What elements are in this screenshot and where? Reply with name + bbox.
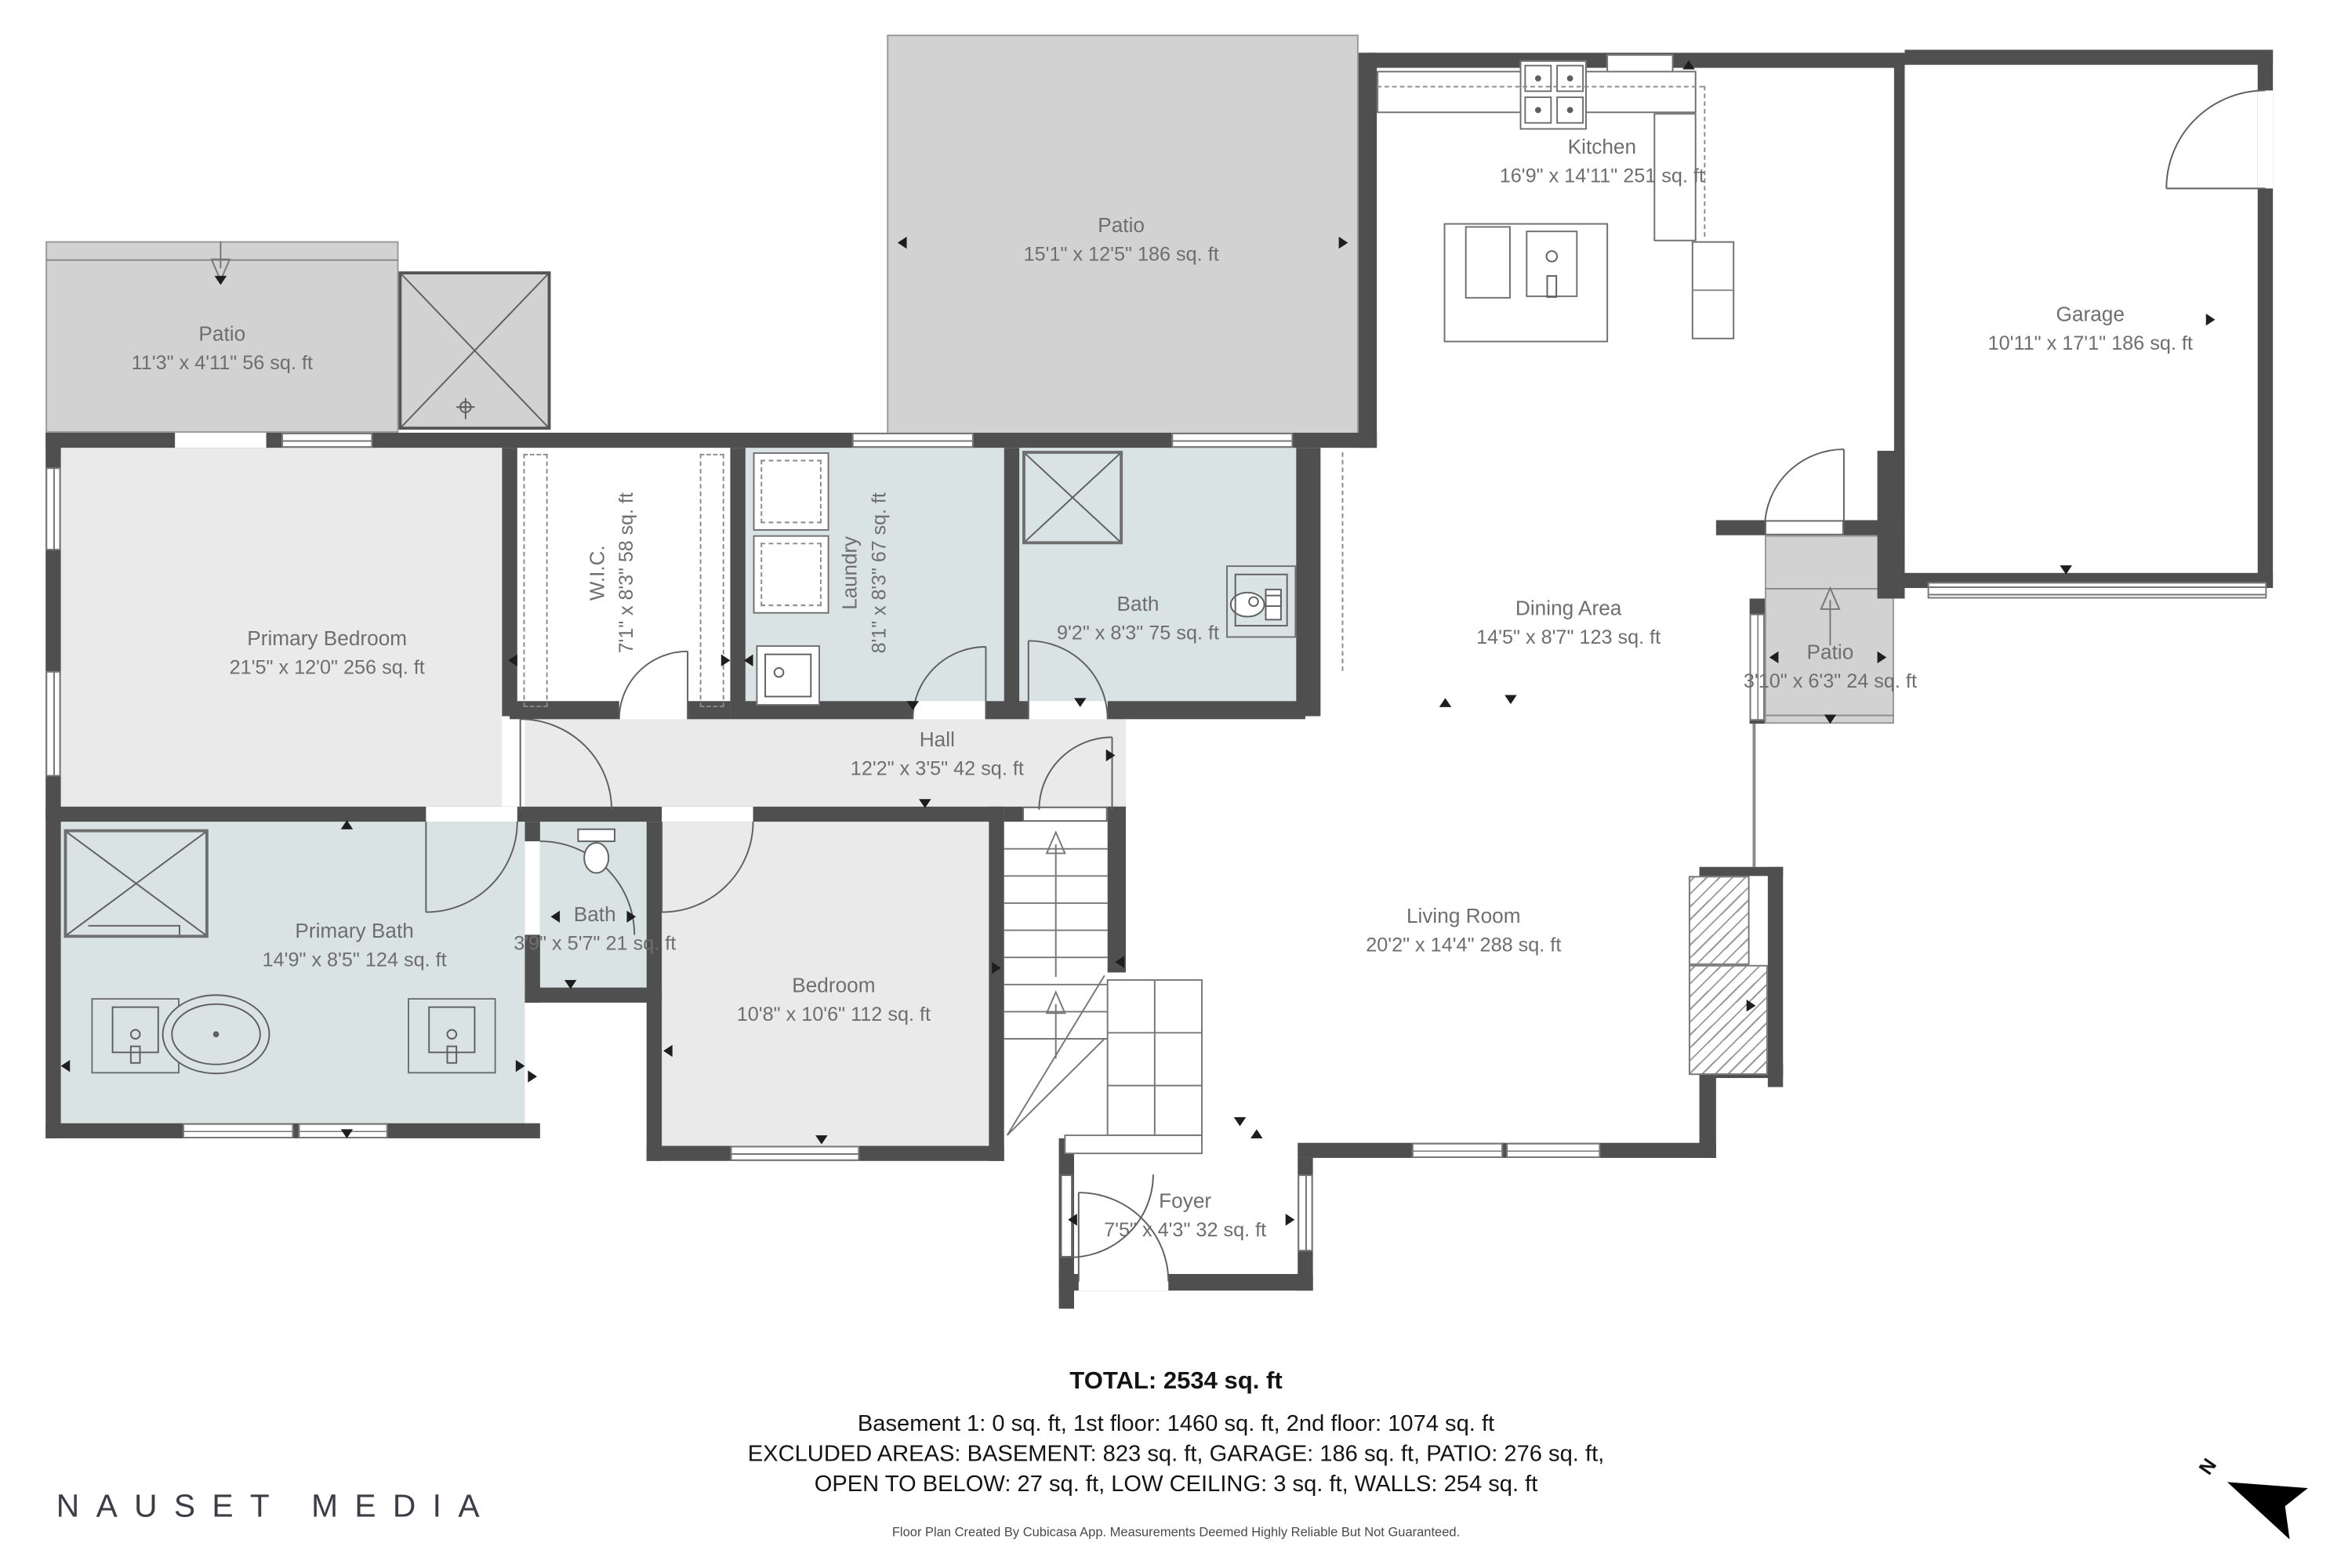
laundry-sink: [756, 645, 820, 706]
wic-closet-dashed: [524, 454, 548, 707]
outdoor-shower: [398, 271, 550, 430]
room-label-primary-bedroom: Primary Bedroom21'5" x 12'0" 256 sq. ft: [230, 624, 425, 681]
dim-marker: [919, 799, 931, 808]
wall: [1004, 448, 1019, 716]
wall: [989, 807, 1004, 1161]
dim-marker: [898, 237, 907, 249]
wall: [1108, 701, 1305, 719]
vanity-sink: [408, 998, 496, 1073]
dim-marker: [550, 911, 560, 923]
room-divider-dashed: [1342, 452, 1344, 671]
wall: [502, 448, 517, 716]
north-arrow-icon: N: [2195, 1454, 2308, 1539]
wall: [730, 448, 745, 716]
dishwasher: [1465, 226, 1511, 298]
cooktop-burner: [1524, 65, 1552, 93]
dim-marker: [663, 1045, 673, 1057]
window: [852, 433, 974, 448]
room-label-laundry: Laundry8'1" x 8'3" 67 sq. ft: [835, 492, 893, 653]
patio-top-left-step-line: [45, 260, 398, 261]
room-label-kitchen: Kitchen16'9" x 14'11" 251 sq. ft: [1500, 132, 1704, 190]
window: [45, 467, 60, 550]
dim-marker: [1439, 698, 1452, 707]
hall-floor: [524, 719, 1125, 807]
window: [730, 1146, 859, 1161]
dim-marker: [1074, 698, 1087, 707]
excluded-areas-text: EXCLUDED AREAS: BASEMENT: 823 sq. ft, GA…: [748, 1441, 1605, 1467]
window-band: [1928, 582, 2267, 598]
room-label-bedroom: Bedroom10'8" x 10'6" 112 sq. ft: [737, 971, 931, 1028]
dim-marker: [564, 980, 577, 989]
wall: [524, 988, 662, 1003]
room-label-bath-middle: Bath9'2" x 8'3" 75 sq. ft: [1057, 590, 1219, 647]
door-opening: [2258, 90, 2273, 188]
wall: [1768, 867, 1783, 1087]
vanity-sink: [91, 998, 180, 1073]
patio-right-area: [1765, 535, 1894, 724]
floor-plan: N Patio11'3" x 4'11" 56 sq. ft Patio15'1…: [0, 0, 2352, 1568]
room-label-garage: Garage10'11" x 17'1" 186 sq. ft: [1988, 300, 2193, 358]
wall: [1108, 807, 1126, 973]
door-slab: [1765, 520, 1844, 535]
refrigerator-split: [1692, 289, 1734, 291]
room-label-foyer: Foyer7'5" x 4'3" 32 sq. ft: [1104, 1186, 1266, 1243]
dim-marker: [2060, 565, 2072, 575]
dim-marker: [341, 1129, 354, 1138]
window: [1412, 1143, 1503, 1158]
dim-marker: [61, 1060, 71, 1072]
fireplace: [1689, 876, 1750, 964]
vanity-sink: [1226, 565, 1296, 637]
room-label-hall: Hall12'2" x 3'5" 42 sq. ft: [851, 725, 1024, 782]
dim-marker: [516, 1060, 525, 1072]
dim-marker: [1682, 60, 1695, 70]
dim-marker: [992, 962, 1001, 974]
door-arc: [1765, 449, 1844, 528]
wall-thin: [1752, 724, 1755, 867]
room-label-patio-top-middle: Patio15'1" x 12'5" 186 sq. ft: [1024, 211, 1219, 268]
dim-marker: [1286, 1214, 1295, 1225]
dryer-dashed: [760, 543, 822, 606]
wall: [985, 701, 1028, 719]
room-label-dining-area: Dining Area14'5" x 8'7" 123 sq. ft: [1476, 594, 1661, 652]
window: [183, 1123, 294, 1138]
dim-marker: [508, 655, 517, 666]
dim-marker: [341, 820, 354, 829]
wall: [1296, 448, 1320, 716]
dim-marker: [1234, 1117, 1247, 1127]
stairs-floor: [1004, 822, 1108, 1138]
stairs-extension: [1108, 980, 1202, 1135]
disclaimer-text: Floor Plan Created By Cubicasa App. Meas…: [892, 1524, 1460, 1539]
window: [1298, 1174, 1312, 1251]
brand-logo: NAUSET MEDIA: [56, 1490, 496, 1526]
washer-dashed: [760, 460, 822, 524]
room-label-living-room: Living Room20'2" x 14'4" 288 sq. ft: [1366, 902, 1561, 959]
dim-marker: [1339, 237, 1348, 249]
door-arc: [2166, 90, 2265, 188]
north-label: N: [2195, 1454, 2221, 1479]
stair-landing-top: [1022, 807, 1108, 822]
wall: [524, 807, 1004, 822]
dim-marker: [1769, 652, 1779, 663]
room-label-patio-right: Patio3'10" x 6'3" 24 sq. ft: [1744, 637, 1917, 695]
dim-marker: [1115, 956, 1124, 967]
dim-marker: [2206, 314, 2216, 325]
wall-oven: [1606, 54, 1673, 72]
dim-marker: [815, 1135, 828, 1145]
dim-marker: [721, 655, 731, 666]
door-opening: [1079, 1274, 1168, 1290]
room-label-primary-bath: Primary Bath14'9" x 8'5" 124 sq. ft: [263, 916, 447, 974]
cooktop-burner: [1556, 65, 1584, 93]
window: [45, 671, 60, 777]
wall: [1359, 53, 1377, 448]
wic-closet-dashed: [700, 454, 724, 707]
cooktop-burner: [1524, 96, 1552, 124]
dim-marker: [1068, 1214, 1077, 1225]
dim-marker: [744, 655, 753, 666]
fireplace: [1689, 965, 1768, 1075]
room-label-wic: W.I.C.7'1" x 8'3" 58 sq. ft: [583, 492, 641, 653]
patio-right-step-line: [1765, 588, 1894, 590]
dim-marker: [215, 276, 227, 285]
door-opening: [175, 433, 266, 448]
stairs-extension-treads: [1108, 980, 1202, 1135]
dim-marker: [626, 911, 636, 923]
dim-marker: [1250, 1129, 1263, 1138]
dim-marker: [907, 701, 920, 710]
floor-areas-text: Basement 1: 0 sq. ft, 1st floor: 1460 sq…: [858, 1411, 1494, 1437]
window: [281, 433, 372, 448]
dim-marker: [1747, 1000, 1756, 1011]
window: [1506, 1143, 1600, 1158]
excluded-areas-text2: OPEN TO BELOW: 27 sq. ft, LOW CEILING: 3…: [815, 1472, 1538, 1497]
dim-marker: [1824, 715, 1837, 724]
door-opening: [426, 807, 517, 822]
total-area-text: TOTAL: 2534 sq. ft: [1069, 1369, 1282, 1396]
window: [1171, 433, 1293, 448]
wall: [1878, 451, 1905, 598]
wall: [1905, 49, 2274, 64]
room-label-bath-small: Bath3'9" x 5'7" 21 sq. ft: [514, 900, 676, 957]
dim-marker: [1504, 695, 1517, 705]
upper-cabinet-dashed: [1377, 86, 1704, 88]
shower: [1022, 451, 1123, 544]
door-opening: [662, 807, 753, 822]
dim-marker: [1878, 652, 1887, 663]
dim-marker: [528, 1070, 537, 1082]
island-sink: [1526, 230, 1577, 297]
shower: [64, 829, 209, 938]
room-label-patio-top-left: Patio11'3" x 4'11" 56 sq. ft: [132, 320, 313, 377]
dim-marker: [1106, 750, 1116, 761]
cooktop-burner: [1556, 96, 1584, 124]
